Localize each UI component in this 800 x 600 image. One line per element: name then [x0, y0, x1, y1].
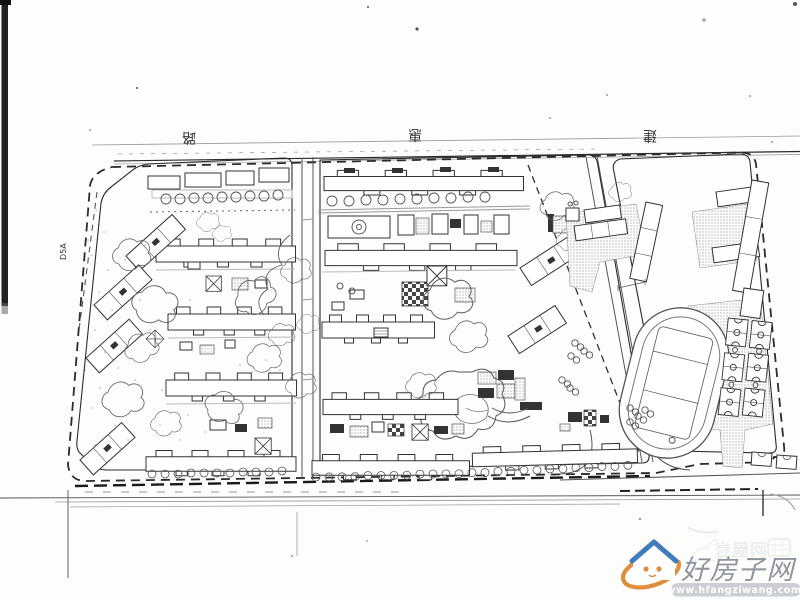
watermark-url-strip: www.hfangziwang.com	[667, 583, 800, 597]
building-slab	[325, 244, 517, 271]
street-label-char: 路	[182, 129, 196, 145]
roof-marks	[344, 167, 499, 173]
grid-logo-icon	[768, 539, 790, 556]
facility-row	[328, 214, 577, 238]
site-plan-drawing: 路 惠 建 D5A	[0, 0, 800, 600]
building-row	[148, 168, 292, 198]
building-slab	[324, 170, 524, 195]
building-slab	[312, 455, 470, 480]
watermark-brand-text: 好房子网	[681, 555, 796, 586]
scanned-site-plan-page: 路 惠 建 D5A	[0, 0, 800, 600]
building-slab	[156, 239, 296, 267]
half-courts	[751, 452, 797, 469]
street-label-char: 建	[643, 127, 657, 143]
stair-mark	[374, 328, 388, 337]
parcel-label: D5A	[59, 243, 68, 260]
building-slab	[472, 443, 638, 471]
paved-plaza	[402, 282, 428, 306]
parcel-west	[77, 158, 320, 478]
street-label-char: 惠	[408, 126, 422, 142]
parcel-center	[312, 155, 649, 481]
building-slab	[166, 373, 297, 401]
watermark-url-text: www.hfangziwang.com	[667, 585, 800, 596]
watermark: 吉屋网 好房子网 www.hfangziwang.com	[619, 539, 800, 597]
top-road: 路 惠 建	[92, 126, 800, 164]
bush-row	[161, 190, 283, 204]
building-slab	[323, 393, 458, 420]
building-slab	[168, 307, 296, 335]
scanner-edge-strip	[0, 0, 11, 314]
